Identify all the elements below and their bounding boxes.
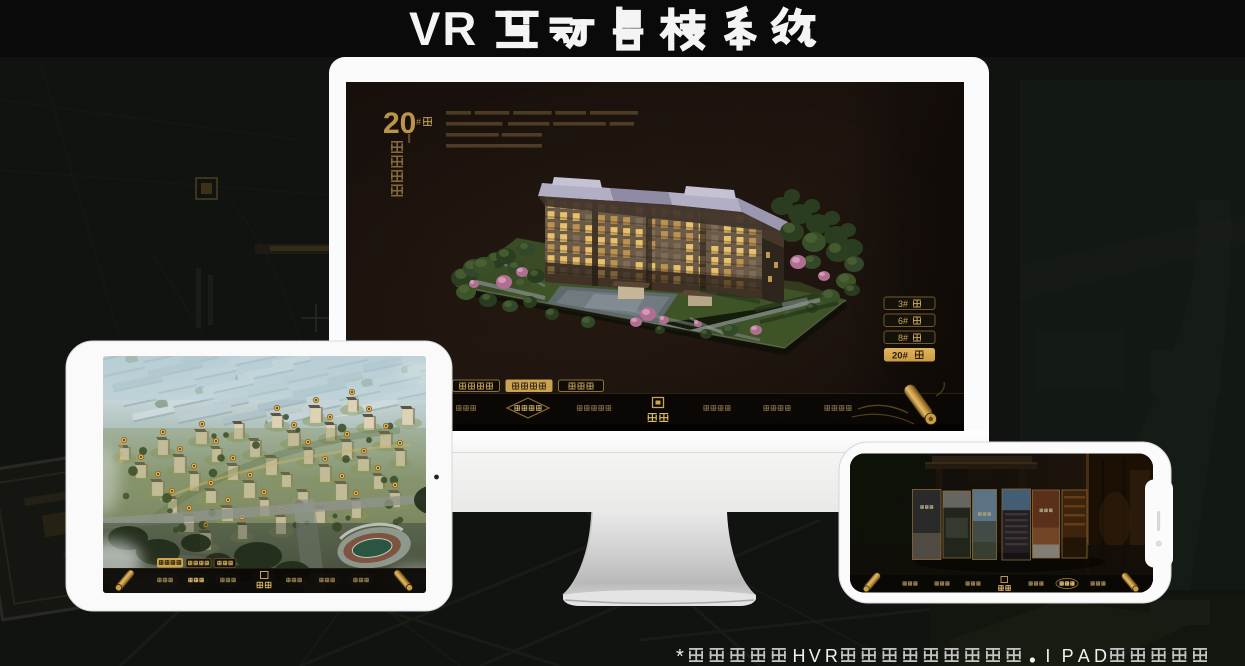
svg-text:8#: 8#: [898, 333, 908, 343]
svg-text:H: H: [793, 646, 806, 666]
svg-text:V: V: [809, 646, 821, 666]
svg-text:6#: 6#: [898, 316, 908, 326]
svg-text:I: I: [1045, 646, 1050, 666]
svg-text:*: *: [676, 646, 684, 666]
svg-text:20#: 20#: [892, 351, 909, 362]
svg-text:R: R: [825, 646, 838, 666]
svg-text:A: A: [1078, 646, 1090, 666]
svg-text:D: D: [1094, 646, 1107, 666]
svg-text:VR: VR: [409, 2, 478, 55]
svg-text:#: #: [416, 117, 421, 127]
svg-text:P: P: [1062, 646, 1074, 666]
svg-text:3#: 3#: [898, 299, 908, 309]
svg-text:20: 20: [383, 107, 416, 140]
